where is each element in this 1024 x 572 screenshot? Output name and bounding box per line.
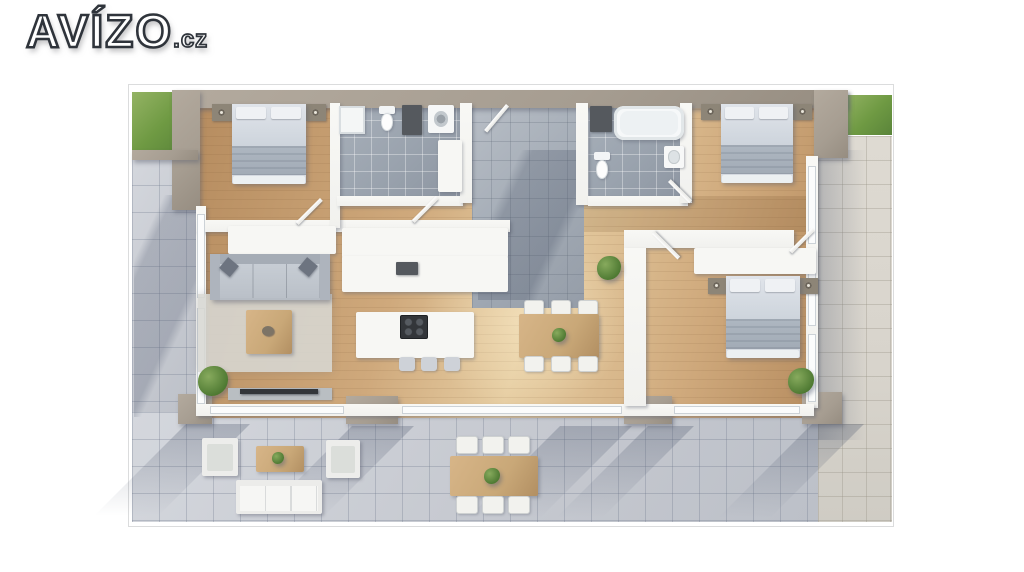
bed-pillow [765,279,795,291]
sofa-arm [320,254,330,300]
wall-bath1-south [337,196,463,206]
bed-pillow [730,279,760,291]
outdoor-chair [508,496,530,514]
bar-stool [399,357,415,371]
bedroom3-nightstand-right [800,278,818,294]
bedroom1-nightstand-right [306,104,326,121]
bathtub [614,106,684,140]
hall-wardrobe [228,226,336,254]
wall-dining-bedroom3 [624,248,646,406]
kitchen-counter [342,256,508,292]
window-bottom-2 [402,406,622,414]
bed-pillow [725,107,754,119]
bedroom3-nightstand-left [708,278,726,294]
dining-chair [524,356,544,372]
dining-chair [551,356,571,372]
avizo-logo: AVÍZO.cz [26,6,208,57]
bed-blanket [726,319,800,349]
outdoor-chair [482,496,504,514]
logo-suffix: .cz [173,26,208,53]
bed-blanket [721,145,793,174]
window-left-1 [197,214,205,298]
outdoor-sofa [236,480,322,514]
dining-chair [578,356,598,372]
toilet-1 [377,106,397,132]
bedroom2-nightstand-left [701,104,720,120]
bed-pillow [271,107,301,119]
bedroom3-bed [726,276,800,358]
outdoor-armchair [326,440,360,478]
window-right-3 [808,334,816,402]
sofa-arm [210,254,220,300]
wall-bedroom3-north [624,230,794,248]
wall-grass-edge [132,150,198,160]
coffee-table-decor [262,326,274,336]
bed-footboard [233,176,304,184]
bed-pillow [759,107,788,119]
toilet-bowl [381,113,394,131]
bar-stool [421,357,437,371]
bed-blanket [232,146,306,176]
bathtub-inner [620,111,679,134]
washing-machine [428,105,454,133]
bathroom1-vanity-dark [402,105,422,135]
bed-pillow [236,107,266,119]
toilet-2 [592,152,612,180]
bedroom2-bed [721,104,793,183]
grass-top-right [842,95,892,135]
kitchen-upper-cabinets [342,228,508,258]
outdoor-armchair [202,438,238,476]
wall-bath2-south [588,196,688,206]
floor-plan-render: AVÍZO.cz [0,0,1024,572]
shower [339,106,365,134]
window-bottom-3 [674,406,800,414]
wall-entry-bath2 [576,103,588,205]
bedroom3-wardrobe [694,248,816,274]
toilet-bowl [596,160,609,179]
wall-top-right [814,90,848,158]
outdoor-chair [456,436,478,454]
bathroom1-washbasin-counter [438,140,462,192]
living-room-sofa [210,254,330,300]
tv [240,389,318,394]
terrace-left-shadow [134,195,198,417]
bedroom2-nightstand-right [793,104,812,120]
bathroom2-sink [664,146,684,168]
outdoor-chair [508,436,530,454]
bedroom1-nightstand-left [212,104,232,121]
kitchen-sink-dark [396,262,418,275]
bed-footboard [722,175,791,183]
window-bottom-1 [210,406,344,414]
bed-footboard [727,350,798,358]
cooktop [400,315,428,339]
logo-text: AVÍZO [26,5,173,57]
bedroom1-bed [232,104,306,184]
outdoor-chair [482,436,504,454]
bar-stool [444,357,460,371]
bathroom2-shelf-dark [590,106,612,132]
outdoor-chair [456,496,478,514]
